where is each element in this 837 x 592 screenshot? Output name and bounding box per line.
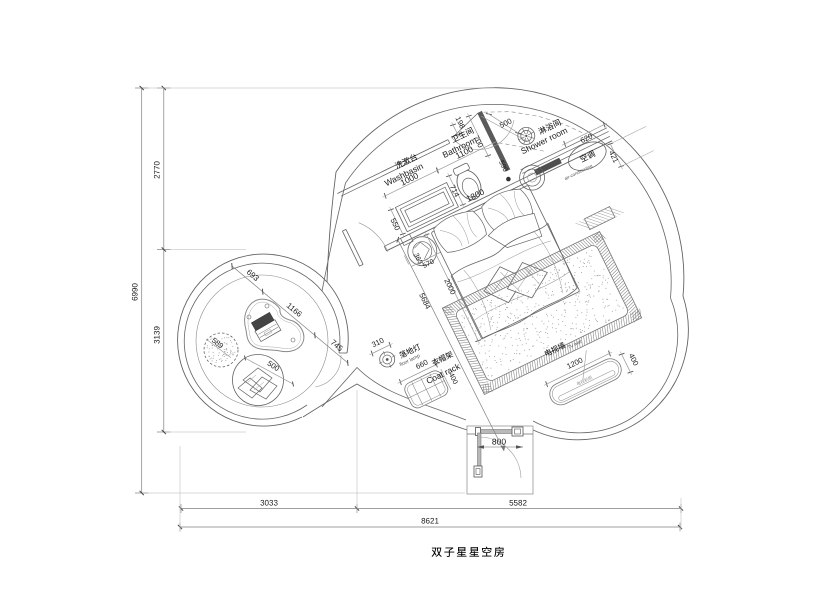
svg-text:3139: 3139 <box>153 326 162 344</box>
svg-text:8621: 8621 <box>421 517 439 526</box>
svg-text:6990: 6990 <box>131 283 140 301</box>
svg-text:5582: 5582 <box>509 499 527 508</box>
svg-text:2770: 2770 <box>153 161 162 179</box>
svg-text:3033: 3033 <box>260 499 278 508</box>
